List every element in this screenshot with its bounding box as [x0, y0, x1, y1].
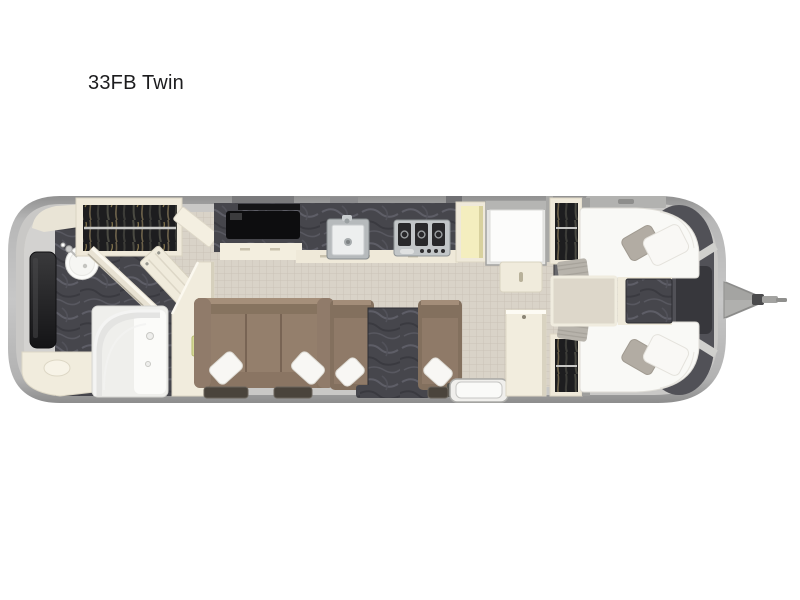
- tow-hitch: [724, 282, 787, 318]
- curved-glass-shower: [92, 306, 168, 397]
- nightstand: [618, 277, 672, 325]
- entry-step: [447, 379, 508, 402]
- console-ledge: [220, 243, 302, 260]
- kitchen-sink: [327, 215, 369, 259]
- dinette: [330, 300, 462, 398]
- center-carpet-runner: [552, 277, 616, 325]
- three-seat-sofa: [194, 298, 334, 388]
- three-burner-cooktop: [394, 220, 450, 256]
- floorplan-page: 33FB Twin: [0, 0, 800, 600]
- bedroom-divider-cabinet: [506, 310, 546, 396]
- door-knob: [61, 243, 65, 247]
- wall-tv-highlight: [33, 258, 38, 338]
- sofa-armrest-left: [194, 298, 211, 388]
- pantry-cabinet: [456, 202, 488, 262]
- dinette-table: [368, 308, 420, 388]
- refrigerator: [486, 201, 546, 265]
- jack-bar: [762, 296, 778, 303]
- base-cabinet: [500, 262, 542, 292]
- console-tv-highlight: [230, 213, 242, 220]
- floorplan-image: [0, 0, 800, 600]
